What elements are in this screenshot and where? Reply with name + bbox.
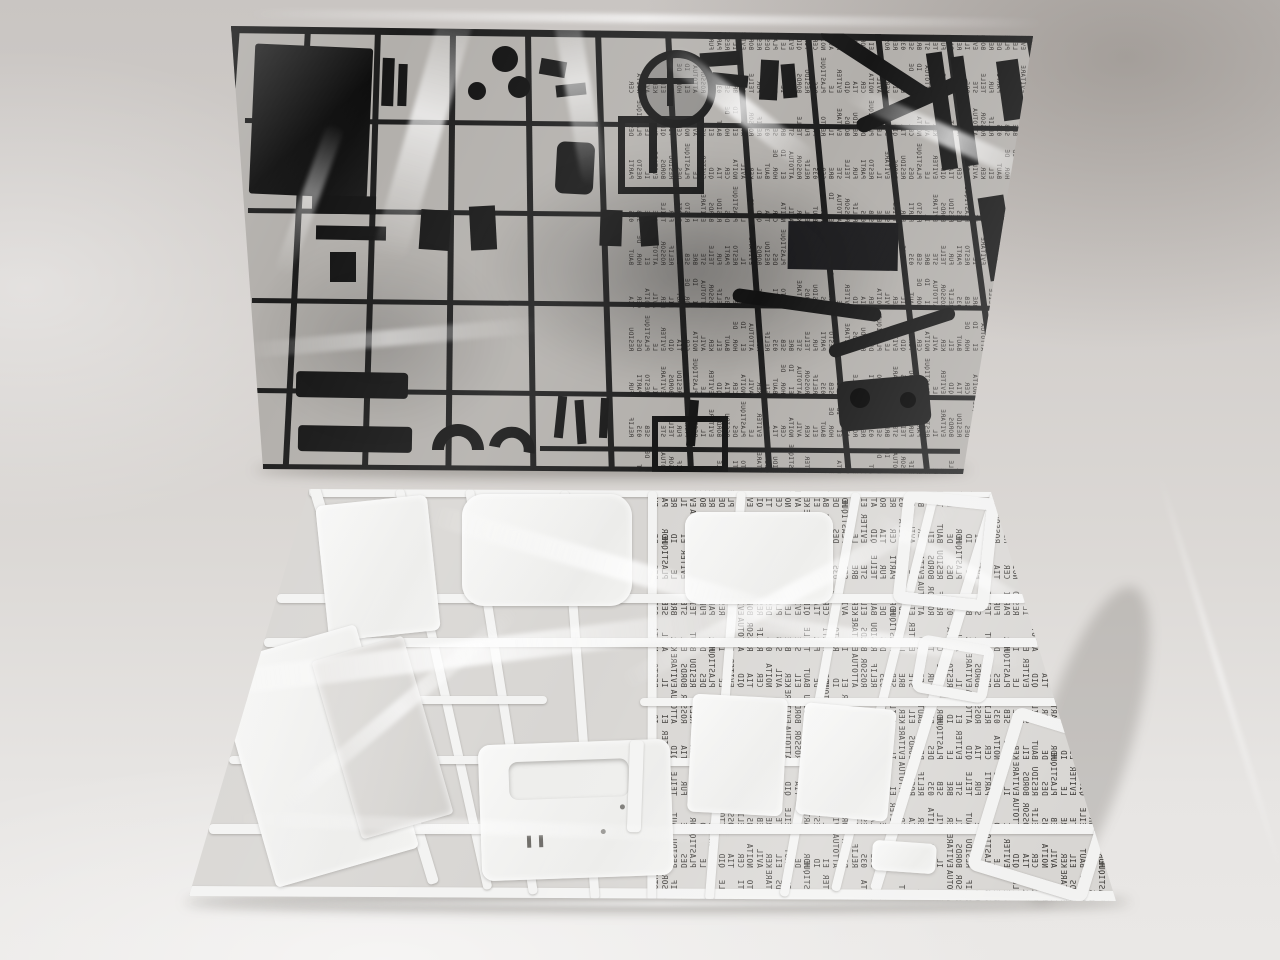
bag-right-edge (1156, 471, 1280, 874)
bag-bottom-edge (180, 900, 1140, 907)
photo-model-kit-sprues: EVITER LE PLASTIQUE DES RESIDU BORDS EVI… (0, 0, 1280, 960)
sprue-frame-right (1026, 35, 1105, 477)
bag-top-edge (246, 9, 1046, 28)
sprue-frame-left (199, 26, 240, 472)
